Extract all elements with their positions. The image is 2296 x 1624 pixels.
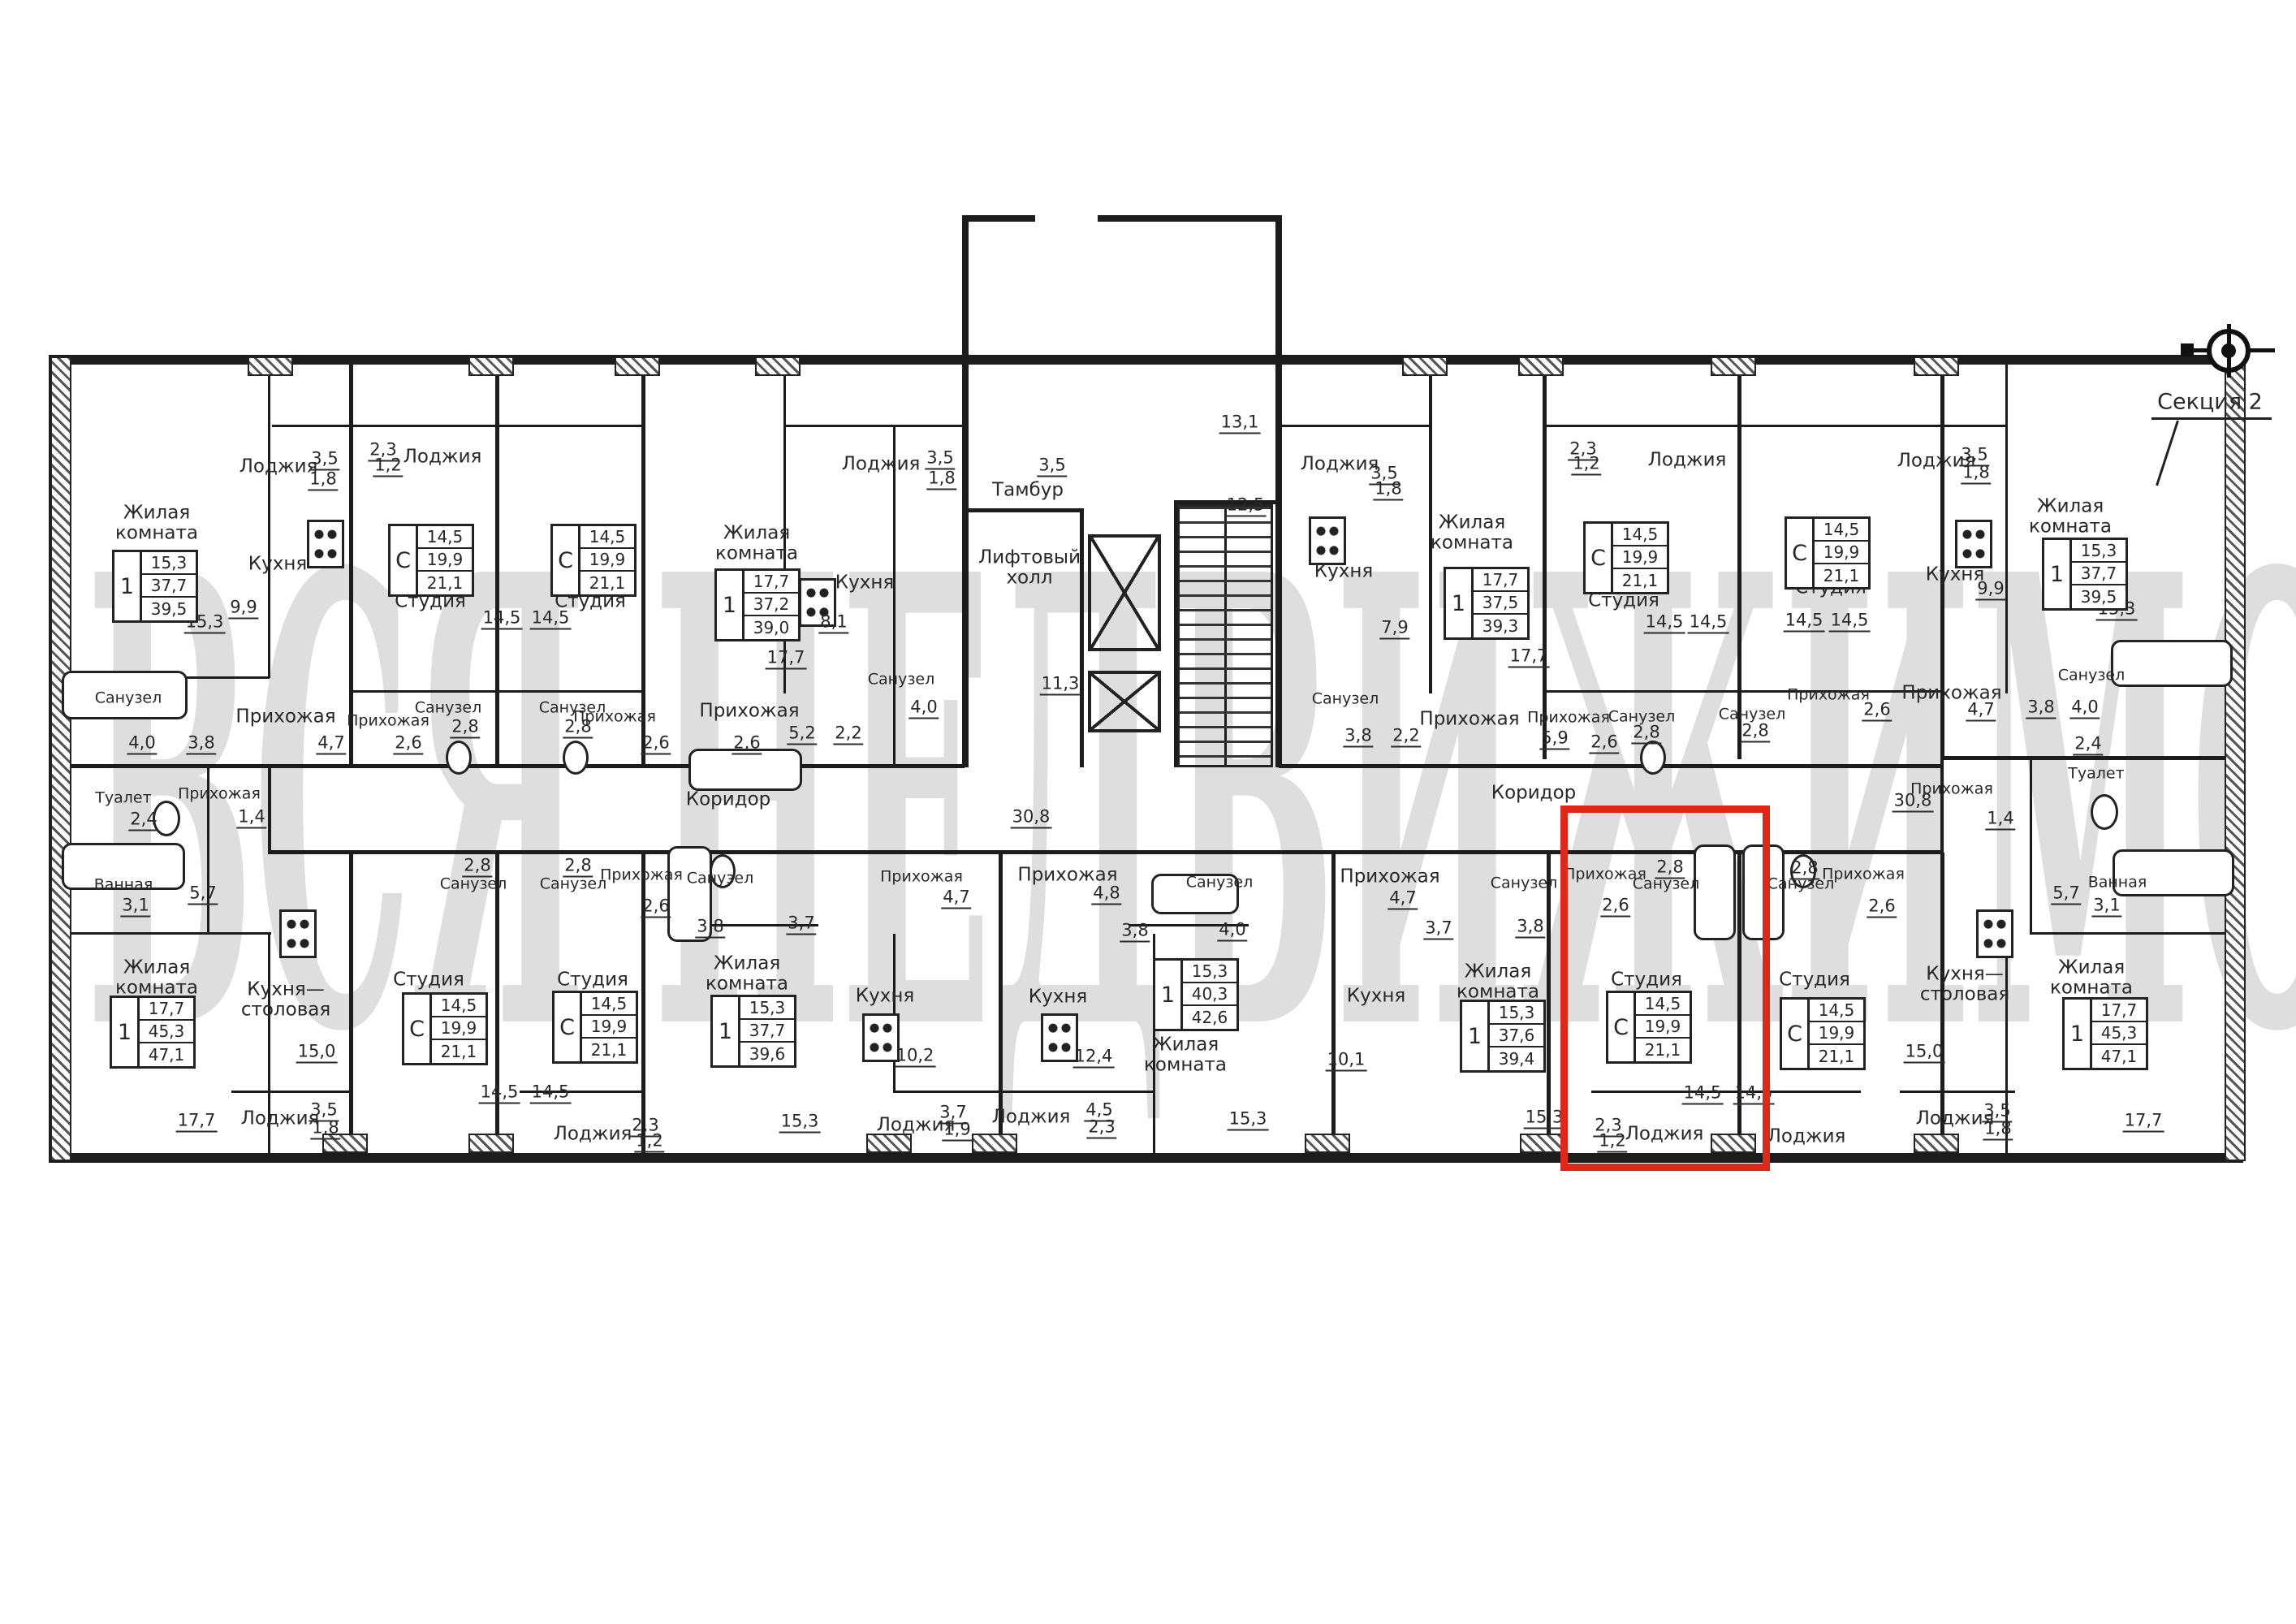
room-label: Ванная <box>2088 875 2147 892</box>
area-value: 14,5 <box>1613 524 1667 546</box>
wall-segment <box>962 215 1035 222</box>
room-label: Кухня <box>248 554 307 574</box>
area-value: 40,3 <box>1183 983 1236 1006</box>
area-value: 14,5 <box>1815 519 1868 542</box>
area-value: 45,3 <box>140 1021 193 1043</box>
dimension-label: 4,0 <box>127 735 157 755</box>
wall-segment <box>783 425 964 427</box>
room-label: Санузел <box>540 876 607 893</box>
room-label: Лоджия <box>240 456 318 477</box>
wall-segment <box>231 1091 351 1093</box>
room-label: Прихожая <box>178 786 261 803</box>
apartment-type: С <box>1787 519 1815 587</box>
stove-icon <box>1309 516 1346 565</box>
wall-segment <box>495 853 499 1155</box>
room-label: Кухня— столовая <box>241 980 330 1021</box>
room-label: Жилая комната <box>706 954 788 996</box>
dimension-label: 10,2 <box>895 1047 936 1068</box>
dimension-label: 3,1 <box>2091 897 2121 918</box>
dimension-label: 15,3 <box>1524 1109 1565 1129</box>
dimension-label: 3,8 <box>186 735 216 755</box>
dimension-label: 3,8 <box>1343 728 1373 748</box>
area-value: 19,9 <box>1810 1022 1863 1045</box>
hatched-wall-pier <box>615 356 660 376</box>
section-underline <box>2151 417 2272 420</box>
dimension-label: 4,7 <box>1388 890 1418 910</box>
dimension-label: 1,2 <box>373 457 403 477</box>
hatched-wall-pier <box>1711 356 1756 376</box>
apartment-type: 1 <box>713 997 740 1065</box>
stove-icon <box>1976 909 2013 958</box>
bathtub-icon <box>688 749 802 791</box>
apartment-type: 1 <box>1446 569 1474 637</box>
room-label: Лоджия <box>554 1124 632 1144</box>
elevator-shaft-icon <box>1088 534 1161 651</box>
room-label: Прихожая <box>1419 709 1519 729</box>
room-label: Кухня <box>1029 987 1087 1007</box>
room-label: Студия <box>557 970 628 990</box>
apartment-info-table: 115,337,739,5 <box>112 550 198 623</box>
dimension-label: 30,8 <box>1011 809 1052 829</box>
dimension-label: 3,1 <box>120 897 150 918</box>
area-value: 37,7 <box>2072 563 2126 585</box>
room-label: Жилая комната <box>1431 513 1513 555</box>
wall-segment <box>349 853 353 1155</box>
dimension-label: 1,8 <box>926 470 956 490</box>
apartment-type: С <box>1586 524 1613 592</box>
apartment-info-table: С14,519,921,1 <box>552 991 638 1064</box>
hatched-wall-pier <box>1518 356 1564 376</box>
apartment-type: С <box>391 526 418 594</box>
dimension-label: 2,6 <box>393 735 423 755</box>
dimension-label: 7,9 <box>1379 620 1409 640</box>
room-label: Жилая комната <box>115 503 198 545</box>
apartment-type: С <box>555 993 582 1061</box>
apartment-type: С <box>404 995 432 1063</box>
area-value: 21,1 <box>1613 569 1667 592</box>
dimension-label: 14,5 <box>481 610 523 630</box>
area-value: 21,1 <box>432 1040 486 1063</box>
wall-segment <box>1279 764 1943 768</box>
wall-segment <box>1098 215 1282 222</box>
apartment-info-table: С14,519,921,1 <box>550 524 637 597</box>
apartment-info-table: С14,519,921,1 <box>1785 516 1871 590</box>
room-label: Кухня <box>835 572 894 593</box>
apartment-info-table: 117,745,347,1 <box>2062 997 2148 1070</box>
dimension-label: 11,3 <box>1040 676 1081 696</box>
dimension-label: 17,7 <box>766 650 807 670</box>
room-label: Лоджия <box>404 447 482 467</box>
wall-segment <box>2030 932 2236 935</box>
dimension-label: 5,2 <box>787 725 817 745</box>
area-value: 47,1 <box>140 1043 193 1066</box>
dimension-label: 4,0 <box>1217 922 1247 942</box>
dimension-label: 1,2 <box>634 1133 664 1153</box>
area-value: 39,6 <box>740 1043 794 1065</box>
dimension-label: 15,0 <box>296 1043 338 1064</box>
area-value: 15,3 <box>740 997 794 1020</box>
area-value: 19,9 <box>432 1017 486 1040</box>
stove-icon <box>279 909 317 958</box>
apartment-type: 1 <box>717 571 744 639</box>
area-value: 21,1 <box>580 572 634 594</box>
wall-segment <box>969 508 1082 512</box>
room-label: Коридор <box>1491 783 1577 803</box>
area-value: 17,7 <box>1474 569 1527 592</box>
dimension-label: 1,4 <box>1985 810 2015 831</box>
room-label: Прихожая <box>1527 710 1610 727</box>
wall-segment <box>268 365 270 678</box>
area-value: 39,5 <box>2072 585 2126 608</box>
dimension-label: 5,7 <box>188 885 218 905</box>
wall-segment <box>1543 425 2007 427</box>
dimension-label: 3,7 <box>786 915 816 935</box>
wall-segment <box>1940 756 1944 853</box>
dimension-label: 3,8 <box>695 918 725 939</box>
area-value: 39,5 <box>142 598 196 620</box>
room-label: Прихожая <box>1340 866 1439 887</box>
area-value: 14,5 <box>582 993 636 1016</box>
dimension-label: 5,7 <box>2051 885 2081 905</box>
area-value: 17,7 <box>744 571 798 594</box>
room-label: Лифтовый холл <box>978 548 1081 590</box>
dimension-label: 3,5 <box>1037 457 1067 477</box>
hatched-wall-pier <box>248 356 293 376</box>
hatched-wall-pier <box>468 356 514 376</box>
apartment-info-table: 117,737,539,3 <box>1444 567 1530 640</box>
dimension-label: 2,8 <box>1740 723 1770 743</box>
dimension-label: 14,5 <box>530 610 572 630</box>
room-label: Прихожая <box>1910 781 1993 798</box>
hatched-wall-pier <box>866 1134 912 1153</box>
area-value: 19,9 <box>580 549 634 572</box>
dimension-label: 12,5 <box>1225 497 1267 517</box>
apartment-info-table: 115,337,639,4 <box>1460 1000 1546 1073</box>
dimension-label: 9,9 <box>1975 581 2005 601</box>
room-label: Лоджия <box>992 1107 1071 1127</box>
room-label: Коридор <box>686 789 771 810</box>
dimension-label: 4,7 <box>316 735 346 755</box>
wall-segment <box>893 425 896 766</box>
area-value: 37,6 <box>1490 1025 1543 1047</box>
room-label: Жилая комната <box>2029 497 2112 538</box>
room-label: Санузел <box>1186 875 1254 892</box>
dimension-label: 3,8 <box>2026 699 2056 719</box>
elevator-shaft-icon <box>1088 671 1161 732</box>
dimension-label: 1,2 <box>1571 456 1601 476</box>
hatched-wall-pier <box>1520 1134 1565 1153</box>
area-value: 17,7 <box>140 998 193 1021</box>
toilet-icon <box>1640 741 1666 775</box>
dimension-label: 14,5 <box>1829 612 1871 633</box>
dimension-label: 3,8 <box>1120 922 1150 943</box>
wall-segment <box>1331 853 1336 1155</box>
area-value: 37,7 <box>740 1020 794 1043</box>
wall-segment <box>1737 365 1741 759</box>
toilet-icon <box>446 741 472 775</box>
dimension-label: 5,9 <box>1539 730 1569 750</box>
area-value: 21,1 <box>418 572 472 594</box>
dimension-label: 4,7 <box>941 889 971 909</box>
room-label: Кухня <box>1314 561 1373 581</box>
wall-segment <box>349 690 643 693</box>
dimension-label: 2,6 <box>1867 898 1897 918</box>
area-value: 39,0 <box>744 616 798 639</box>
dimension-label: 17,7 <box>2123 1112 2164 1133</box>
room-label: Туалет <box>2068 766 2124 783</box>
area-value: 19,9 <box>1815 542 1868 564</box>
dimension-label: 17,7 <box>1508 648 1550 668</box>
wall-segment <box>49 1153 2243 1163</box>
room-label: Прихожая <box>699 701 799 721</box>
room-label: Ванная <box>94 877 153 894</box>
room-label: Прихожая <box>600 867 683 884</box>
wall-segment <box>1900 1091 2015 1093</box>
section-label: Секция 2 <box>2157 390 2263 415</box>
dimension-label: 2,2 <box>1391 728 1421 748</box>
hatched-wall-pier <box>1402 356 1448 376</box>
apartment-info-table: 115,340,342,6 <box>1153 958 1239 1031</box>
wall-segment <box>268 764 271 853</box>
room-label: Студия <box>393 970 464 990</box>
room-label: Прихожая <box>880 869 963 886</box>
room-label: Санузел <box>2058 667 2126 685</box>
room-label: Санузел <box>1491 875 1558 892</box>
area-value: 14,5 <box>580 526 634 549</box>
dimension-label: 3,7 <box>1423 920 1453 940</box>
apartment-type: 1 <box>1462 1002 1490 1070</box>
dimension-label: 2,6 <box>732 735 762 755</box>
staircase-icon <box>1177 504 1273 767</box>
apartment-type: 1 <box>2065 1000 2092 1068</box>
dimension-label: 4,0 <box>908 699 939 719</box>
wall-segment <box>272 425 643 427</box>
wall-segment <box>893 1091 1154 1093</box>
floor-plan: ВСЯ НЕДВИЖИМОСТЬ Секция 2 Жилая комната1… <box>0 0 2296 1624</box>
area-value: 19,9 <box>418 549 472 572</box>
room-label: Жилая комната <box>115 958 198 1000</box>
dimension-label: 1,9 <box>942 1121 972 1142</box>
area-value: 37,2 <box>744 594 798 616</box>
dimension-label: 1,8 <box>308 471 338 491</box>
room-label: Санузел <box>95 690 162 707</box>
dimension-label: 3,8 <box>1515 918 1545 939</box>
room-label: Прихожая <box>1822 866 1905 883</box>
area-value: 42,6 <box>1183 1006 1236 1029</box>
room-label: Жилая комната <box>1457 962 1539 1004</box>
dimension-label: 9,9 <box>228 599 258 620</box>
dimension-label: 15,3 <box>1228 1111 1269 1131</box>
dimension-label: 4,8 <box>1091 885 1121 905</box>
dimension-label: 2,6 <box>1589 734 1619 754</box>
wall-segment <box>1543 365 1547 759</box>
area-value: 21,1 <box>1810 1045 1863 1068</box>
dimension-label: 2,2 <box>833 725 863 745</box>
wall-segment <box>2005 365 2008 693</box>
hatched-wall-pier <box>50 356 71 1161</box>
dimension-label: 14,5 <box>1644 614 1685 634</box>
dimension-label: 13,1 <box>1219 414 1261 434</box>
stove-icon <box>307 520 344 568</box>
dimension-label: 1,4 <box>236 809 266 829</box>
dimension-label: 14,5 <box>530 1084 572 1104</box>
area-value: 37,7 <box>142 575 196 598</box>
area-value: 17,7 <box>2092 1000 2146 1022</box>
wall-segment <box>2030 759 2032 934</box>
room-label: Санузел <box>415 700 482 717</box>
room-label: Лоджия <box>1301 454 1379 474</box>
selected-apartment-highlight <box>1560 806 1770 1171</box>
area-value: 39,4 <box>1490 1047 1543 1070</box>
wall-segment <box>57 764 965 768</box>
dimension-label: 1,8 <box>1983 1121 2013 1141</box>
apartment-type: 1 <box>112 998 140 1066</box>
room-label: Кухня— столовая <box>1920 965 2009 1006</box>
wall-segment <box>1279 425 1431 427</box>
room-label: Лоджия <box>1648 450 1727 470</box>
area-value: 15,3 <box>142 552 196 575</box>
dimension-label: 10,1 <box>1326 1052 1367 1072</box>
room-label: Санузел <box>1312 691 1379 708</box>
bathtub-icon <box>2111 640 2233 687</box>
hatched-wall-pier <box>468 1134 514 1153</box>
dimension-label: 2,6 <box>1862 702 1892 722</box>
wall-segment <box>1940 756 2238 760</box>
apartment-type: С <box>553 526 580 594</box>
dimension-label: 14,5 <box>1688 614 1729 634</box>
wall-segment <box>1275 215 1282 371</box>
apartment-info-table: 117,745,347,1 <box>110 996 196 1069</box>
apartment-info-table: 115,337,739,6 <box>710 995 796 1068</box>
area-value: 14,5 <box>432 995 486 1017</box>
dimension-label: 2,8 <box>1631 724 1661 745</box>
area-value: 14,5 <box>1810 1000 1863 1022</box>
room-label: Прихожая <box>573 709 656 726</box>
apartment-info-table: С14,519,921,1 <box>1583 521 1669 594</box>
room-label: Лоджия <box>241 1108 320 1129</box>
hatched-wall-pier <box>972 1134 1017 1153</box>
area-value: 19,9 <box>582 1016 636 1039</box>
dimension-label: 2,4 <box>2073 736 2103 756</box>
area-value: 21,1 <box>582 1039 636 1061</box>
wall-segment <box>57 932 271 935</box>
dimension-label: 4,7 <box>1966 702 1996 722</box>
room-label: Лоджия <box>1767 1126 1846 1147</box>
area-value: 19,9 <box>1613 546 1667 569</box>
wall-segment <box>962 215 969 371</box>
dimension-label: 1,8 <box>310 1120 340 1140</box>
room-label: Жилая комната <box>1144 1035 1227 1077</box>
area-value: 15,3 <box>1183 961 1236 983</box>
dimension-label: 1,8 <box>1373 481 1403 501</box>
dimension-label: 3,5 <box>309 451 339 471</box>
apartment-type: С <box>1782 1000 1810 1068</box>
apartment-type: 1 <box>2044 540 2072 608</box>
apartment-info-table: С14,519,921,1 <box>1780 997 1866 1070</box>
apartment-info-table: 115,337,739,5 <box>2042 538 2128 611</box>
room-label: Жилая комната <box>2050 958 2133 1000</box>
dimension-label: 2,6 <box>641 735 671 755</box>
toilet-icon <box>2091 794 2118 830</box>
area-value: 45,3 <box>2092 1022 2146 1045</box>
dimension-label: 14,5 <box>1784 612 1825 633</box>
dimension-label: 8,1 <box>818 614 848 634</box>
hatched-wall-pier <box>1914 356 1959 376</box>
dimension-label: 2,3 <box>1086 1119 1116 1139</box>
room-label: Туалет <box>95 790 151 807</box>
toilet-icon <box>563 741 589 775</box>
room-label: Кухня <box>1347 986 1405 1006</box>
dimension-label: 2,4 <box>128 811 158 831</box>
room-label: Санузел <box>687 870 754 888</box>
area-value: 15,3 <box>2072 540 2126 563</box>
area-value: 37,5 <box>1474 592 1527 615</box>
room-label: Санузел <box>440 876 507 893</box>
area-value: 15,3 <box>1490 1002 1543 1025</box>
apartment-info-table: 117,737,239,0 <box>714 568 801 641</box>
apartment-type: 1 <box>1155 961 1183 1029</box>
stove-icon <box>1955 520 1992 568</box>
wall-segment <box>1543 690 1942 693</box>
room-label: Санузел <box>868 672 935 689</box>
room-label: Кухня <box>856 986 914 1006</box>
room-label: Жилая комната <box>715 524 798 565</box>
dimension-label: 2,6 <box>641 898 671 918</box>
dimension-label: 14,5 <box>479 1084 520 1104</box>
hatched-wall-pier <box>1914 1134 1959 1153</box>
hatched-wall-pier <box>2225 356 2246 1161</box>
area-value: 47,1 <box>2092 1045 2146 1068</box>
dimension-label: 4,0 <box>2069 699 2100 719</box>
area-value: 14,5 <box>418 526 472 549</box>
apartment-info-table: С14,519,921,1 <box>388 524 474 597</box>
apartment-type: 1 <box>114 552 142 620</box>
room-label: Лоджия <box>842 454 921 474</box>
room-label: Студия <box>1779 970 1850 990</box>
area-value: 21,1 <box>1815 564 1868 587</box>
dimension-label: 15,0 <box>1904 1043 1945 1064</box>
dimension-label: 2,8 <box>1789 860 1819 880</box>
room-label: Прихожая <box>235 706 335 727</box>
area-value: 39,3 <box>1474 615 1527 637</box>
dimension-label: 17,7 <box>176 1112 218 1133</box>
dimension-label: 15,3 <box>779 1113 821 1134</box>
room-label: Тамбур <box>992 480 1064 500</box>
dimension-label: 1,8 <box>1961 464 1991 485</box>
dimension-label: 3,5 <box>925 450 955 470</box>
dimension-label: 12,4 <box>1073 1048 1115 1069</box>
dimension-label: 2,8 <box>450 719 480 739</box>
apartment-info-table: С14,519,921,1 <box>402 992 488 1065</box>
room-label: Прихожая <box>1787 687 1870 704</box>
hatched-wall-pier <box>1305 1134 1350 1153</box>
hatched-wall-pier <box>755 356 801 376</box>
